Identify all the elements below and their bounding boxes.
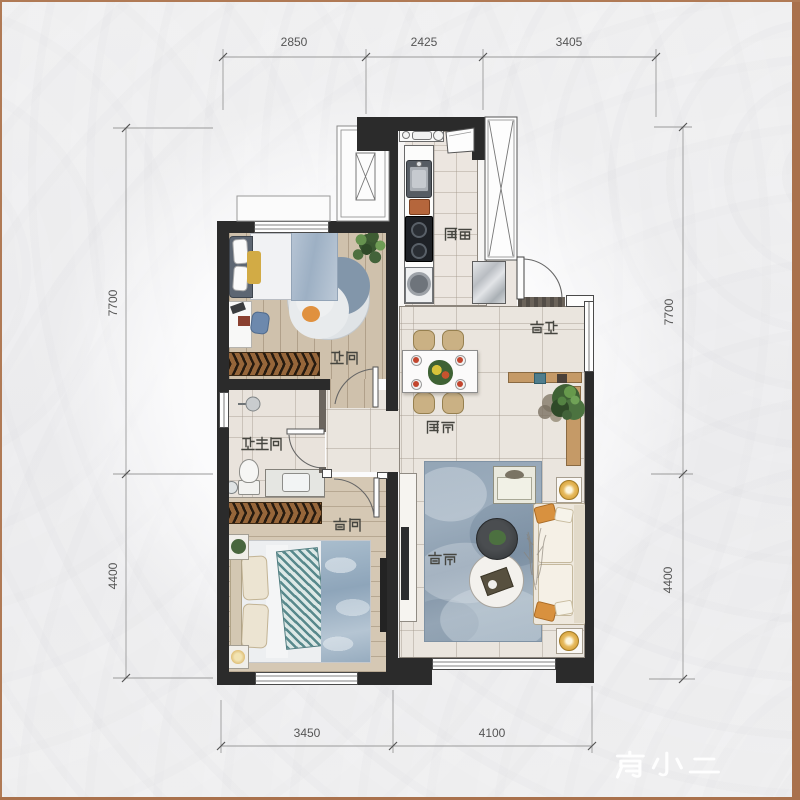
svg-text:3450: 3450 <box>294 726 321 740</box>
svg-text:3405: 3405 <box>556 35 583 49</box>
svg-text:4100: 4100 <box>479 726 506 740</box>
svg-text:4400: 4400 <box>106 562 120 589</box>
svg-text:4400: 4400 <box>661 566 675 593</box>
svg-text:7700: 7700 <box>662 298 676 325</box>
svg-text:2425: 2425 <box>411 35 438 49</box>
svg-text:7700: 7700 <box>106 289 120 316</box>
svg-text:2850: 2850 <box>281 35 308 49</box>
